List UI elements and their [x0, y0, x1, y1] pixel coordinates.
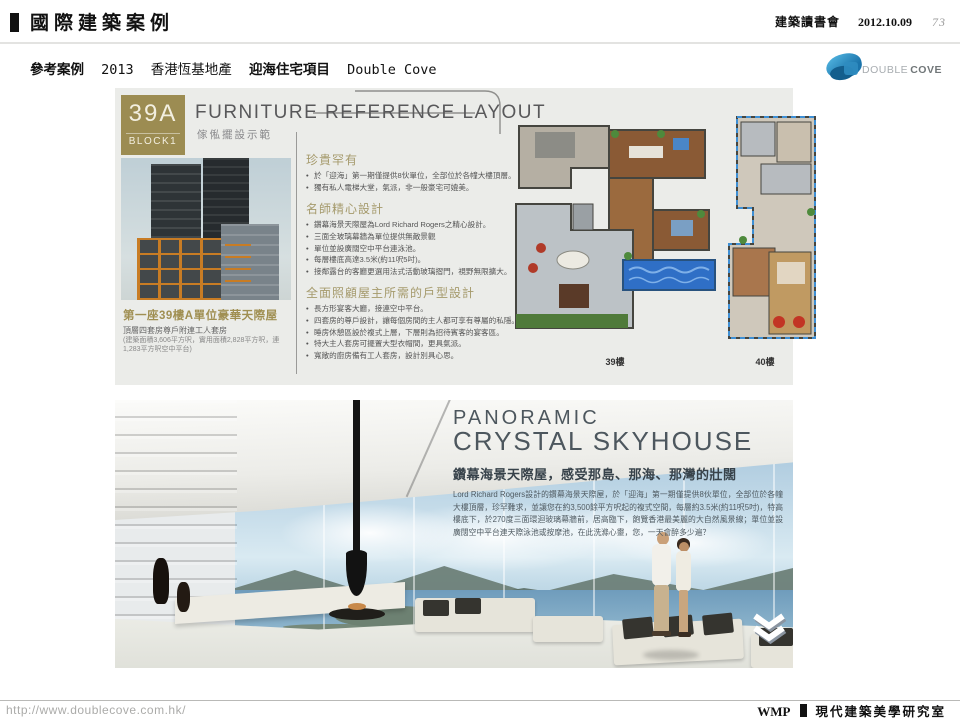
header-group-name: 建築讀書會 [775, 15, 840, 29]
chevron-down-icon[interactable] [749, 612, 789, 646]
bullet-item: •寬敞的廚房備有工人套房，設計別具心思。 [306, 351, 520, 362]
block-badge: 39A BLOCK1 [121, 95, 185, 155]
section-heading: 珍貴罕有 [306, 151, 520, 168]
subtitle-project-en: Double Cove [347, 62, 436, 78]
section-heading: 全面照顧屋主所需的戶型設計 [306, 284, 520, 301]
skyhouse-text-block: PANORAMIC CRYSTAL SKYHOUSE 鑽幕海景天際屋，感受那島、… [453, 408, 789, 539]
unit-subline: 頂層四套房尊戶附連工人套房 [123, 325, 227, 336]
page-number: 73 [932, 15, 946, 29]
footer-accent-bar [800, 704, 807, 717]
block-number: 39A [121, 95, 185, 133]
skyhouse-title-line1: PANORAMIC [453, 408, 789, 428]
doublecove-logo: DOUBLECOVE [826, 52, 926, 88]
skyhouse-title-line2: CRYSTAL SKYHOUSE [453, 428, 789, 455]
floorplan-label-39: 39樓 [511, 355, 719, 368]
header-meta: 建築讀書會 2012.10.09 73 [775, 13, 946, 30]
skyhouse-body: Lord Richard Rogers設計的鑽幕海景天際屋，於「迎海」第一期僅提… [453, 489, 783, 539]
floorplan-39f [511, 108, 719, 346]
footer-credit: WMP現代建築美學研究室 [757, 701, 946, 720]
furniture-layout-figure: 39A BLOCK1 FURNITURE REFERENCE LAYOUT 傢俬… [115, 88, 793, 385]
bullet-item: •獨有私人電梯大堂，氣派，非一般豪宅可媲美。 [306, 183, 520, 194]
bullet-item: •三面全玻璃幕牆為單位提供無敵景觀 [306, 232, 520, 243]
fireplace-flue [353, 400, 360, 568]
tower-block [151, 164, 201, 238]
header-date: 2012.10.09 [858, 15, 912, 29]
bullet-item: •於「迎海」第一期僅提供8伙單位，全部位於各幢大樓頂層。 [306, 171, 520, 182]
block-label: BLOCK1 [126, 133, 180, 147]
bullet-item: •每層樓底高達3.5米(約11呎5吋)。 [306, 255, 520, 266]
bullet-item: •接鄰露台的客廳更選用法式活動玻璃摺門，視野無限擴大。 [306, 267, 520, 278]
subtitle-project: 迎海住宅項目 [249, 62, 330, 78]
subtitle-developer: 香港恆基地產 [151, 62, 232, 78]
bullet-item: •鑽幕海景天際屋為Lord Richard Rogers之精心設計。 [306, 220, 520, 231]
section-heading: 名師精心設計 [306, 200, 520, 217]
footer-org: 現代建築美學研究室 [815, 705, 946, 719]
couple [633, 532, 703, 662]
bullet-item: •睡房休憩區設於複式上層，下層則為招待賓客的宴客區。 [306, 328, 520, 339]
subtitle-year: 2013 [101, 62, 134, 78]
unit-areas: (建築面積3,606平方呎，實用面積2,828平方呎，連1,283平方呎空中平台… [123, 336, 291, 355]
logo-wordmark: DOUBLECOVE [862, 64, 942, 76]
feature-text-column: 珍貴罕有 •於「迎海」第一期僅提供8伙單位，全部位於各幢大樓頂層。 •獨有私人電… [306, 144, 520, 363]
panel1-title-en: FURNITURE REFERENCE LAYOUT [195, 102, 546, 124]
tower-grid [225, 244, 251, 284]
skyhouse-heading-zh: 鑽幕海景天際屋，感受那島、那海、那灣的壯闊 [453, 464, 789, 483]
vase [177, 582, 190, 612]
bullet-item: •單位並設廣闊空中平台連泳池。 [306, 244, 520, 255]
bullet-item: •特大主人套房可擺置大型衣帽間，更具氣派。 [306, 339, 520, 350]
building-photo [121, 158, 291, 300]
footer-brand: WMP [757, 704, 790, 719]
floorplan-label-40: 40樓 [707, 355, 823, 368]
page-title: 國際建築案例 [30, 8, 174, 35]
fireplace-logs [348, 603, 366, 610]
subtitle-prefix: 參考案例 [30, 62, 84, 78]
bullet-item: •長方形宴客大廳，接連空中平台。 [306, 304, 520, 315]
logo-gem-facet-icon [844, 62, 858, 75]
bullet-item: •四套房的尊戶設計，讓每個房間的主人都可享有尊屬的私隱。 [306, 316, 520, 327]
skyhouse-figure: PANORAMIC CRYSTAL SKYHOUSE 鑽幕海景天際屋，感受那島、… [115, 400, 793, 668]
header-accent-bar [10, 13, 19, 32]
slide: 國際建築案例 建築讀書會 2012.10.09 73 參考案例 2013 香港恆… [0, 0, 960, 720]
unit-heading: 第一座39樓A單位豪華天際屋 [123, 307, 278, 323]
vase [153, 558, 169, 604]
floorplan-40f [707, 112, 823, 344]
header-divider [0, 42, 960, 44]
column-divider [296, 132, 297, 374]
panel1-title-zh: 傢俬擺設示範 [197, 127, 272, 142]
footer-url-link[interactable]: http://www.doublecove.com.hk/ [6, 703, 186, 717]
subtitle: 參考案例 2013 香港恆基地產 迎海住宅項目 Double Cove [30, 58, 445, 78]
tower-facade [137, 238, 221, 300]
